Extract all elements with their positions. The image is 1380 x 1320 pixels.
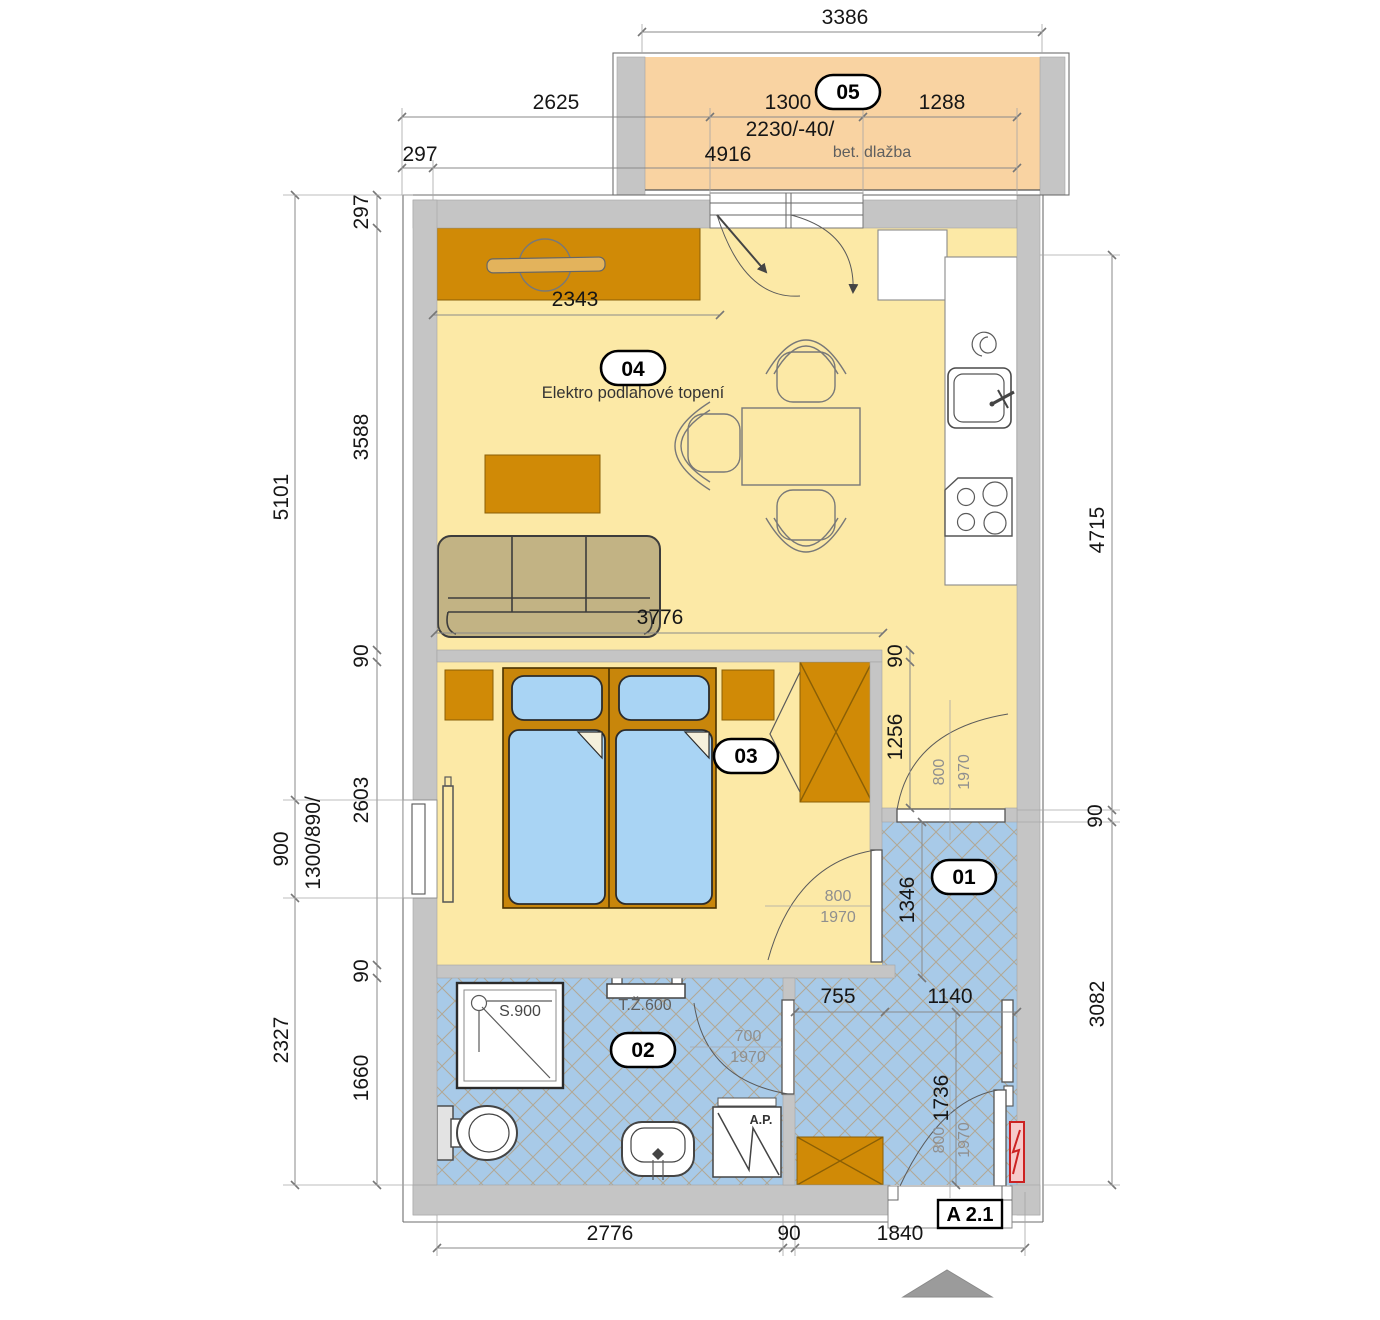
shower-label: S.900 (499, 1003, 541, 1020)
dim-overall-top: 4916 (705, 143, 752, 166)
partition-living-bedroom (437, 650, 882, 662)
room-label-05: 05 (816, 75, 880, 109)
dim-wall-bottom: 90 (777, 1222, 800, 1245)
dim-hall-right: 1140 (927, 985, 972, 1008)
dim-offset-left: 2625 (533, 91, 580, 114)
floor-plan-canvas: A.P. (0, 0, 1380, 1320)
room-label-03: 03 (714, 739, 778, 773)
wall-top-right (863, 200, 1017, 228)
room-03-number: 03 (734, 745, 757, 768)
floor-plan-drawing: A.P. (0, 0, 1380, 1320)
room-01-number: 01 (952, 866, 976, 889)
room-05-number: 05 (836, 81, 860, 104)
electrical-panel (1010, 1122, 1024, 1182)
duvet (509, 730, 605, 904)
wall-bottom-left (413, 1185, 890, 1215)
dim-left-window: 900 (270, 831, 293, 866)
duvet (616, 730, 712, 904)
dim-left-lower: 2327 (270, 1017, 293, 1064)
wall-left-upper (413, 200, 437, 800)
partition-bath-lower (783, 1095, 795, 1185)
wall-right (1017, 195, 1040, 1215)
dim-bathroom-width: 2776 (587, 1222, 634, 1245)
section-mark: A 2.1 (938, 1200, 1002, 1228)
shower (457, 983, 563, 1088)
pillow (512, 676, 602, 720)
stove (945, 478, 1012, 536)
sofa (438, 536, 660, 637)
dim-entry-width: 1840 (877, 1222, 924, 1245)
room-label-02: 02 (611, 1033, 675, 1067)
towel-radiator-label: T.Ž.600 (618, 995, 671, 1014)
corridor-door-height: 1970 (956, 754, 973, 790)
dim-opening: 2230/-40/ (746, 118, 835, 141)
dim-bedroom-height: 2603 (350, 777, 373, 824)
entrance-door-height: 1970 (956, 1122, 973, 1158)
bedroom-door-height: 1970 (820, 909, 856, 926)
balcony-column-left (617, 57, 645, 195)
washing-machine-label: A.P. (750, 1113, 773, 1127)
partition-corridor-stub-left (882, 808, 897, 822)
partition-bedroom-bathroom (437, 965, 895, 978)
room-04-note: Elektro podlahové topení (542, 384, 725, 402)
washbasin (622, 1122, 694, 1180)
dim-corridor: 1256 (884, 714, 907, 761)
dim-living-width: 3776 (637, 606, 684, 629)
bathroom-door-height: 1970 (730, 1049, 766, 1066)
nightstand-right (722, 670, 774, 720)
dim-balcony-right: 1288 (919, 91, 966, 114)
dim-partition-bottom: 90 (350, 959, 373, 982)
bedroom-door-width: 800 (825, 888, 852, 905)
room-label-04: 04 (601, 351, 665, 385)
coffee-table (485, 455, 600, 513)
kitchen-sink (948, 368, 1014, 428)
dim-window-size: 1300/890/ (302, 796, 325, 890)
dim-bathroom-height: 1660 (350, 1055, 373, 1102)
bedroom-window (403, 800, 437, 898)
dim-right-wall: 90 (1084, 804, 1107, 827)
fridge (878, 230, 947, 300)
dim-right-lower: 3082 (1086, 981, 1109, 1028)
dim-balcony-door: 1300 (765, 91, 812, 114)
washing-machine: A.P. (713, 1098, 781, 1177)
dim-partition-top: 90 (350, 644, 373, 667)
pillow (619, 676, 709, 720)
dim-living-height: 3588 (350, 414, 373, 461)
balcony-column-right (1040, 57, 1065, 195)
entrance-door-width: 800 (931, 1127, 948, 1154)
dim-right-upper: 4715 (1086, 507, 1109, 554)
partition-bedroom-right (870, 662, 882, 850)
dim-wall-top: 297 (402, 143, 437, 166)
dim-tv-wall: 2343 (552, 288, 599, 311)
double-bed (503, 668, 716, 908)
dim-total-top: 3386 (822, 6, 869, 29)
balcony-floor-note: bet. dlažba (833, 144, 911, 161)
room-04-number: 04 (621, 358, 645, 381)
corridor-door-width: 800 (931, 759, 948, 786)
dim-bedroom-wall: 90 (884, 644, 907, 667)
hall-cabinet (797, 1137, 883, 1185)
dim-hall-height: 1736 (930, 1075, 953, 1122)
nightstand-left (445, 670, 493, 720)
bathroom-door-width: 700 (735, 1028, 762, 1045)
dim-hall-left: 755 (820, 985, 855, 1008)
dim-hall-upper: 1346 (896, 877, 919, 924)
dim-left-upper: 5101 (270, 474, 293, 521)
room-02-number: 02 (631, 1039, 654, 1062)
room-label-01: 01 (932, 860, 996, 894)
partition-corridor-stub-right (1005, 808, 1017, 822)
entrance-direction-icon (903, 1270, 992, 1297)
wall-top-left (413, 200, 710, 228)
dim-wall-left: 297 (350, 194, 373, 229)
section-mark-label: A 2.1 (946, 1204, 993, 1226)
partition-bath-stub-top (783, 978, 795, 1000)
wall-left-lower (413, 898, 437, 1215)
